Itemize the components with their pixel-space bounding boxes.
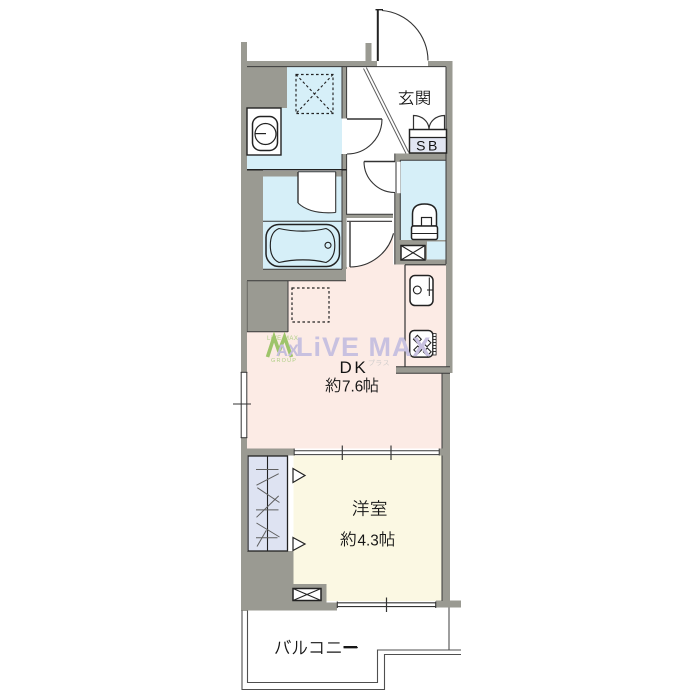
svg-text:SB: SB (416, 138, 440, 154)
svg-text:4.3: 4.3 (358, 532, 379, 549)
svg-text:7.6: 7.6 (342, 378, 363, 395)
svg-text:GROUP: GROUP (271, 358, 297, 364)
svg-text:DK: DK (340, 358, 369, 377)
